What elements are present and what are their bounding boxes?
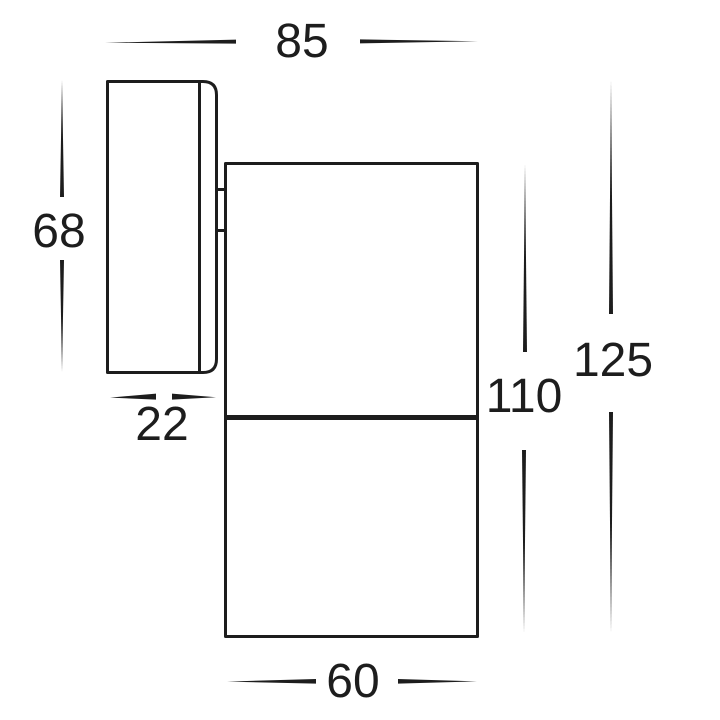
dim-body-width-left-stroke [227,679,316,684]
fixture-body-outline [226,164,478,637]
dim-overall-depth-right-stroke [360,39,478,43]
technical-drawing: 85 68 22 110 125 60 [0,0,720,720]
dim-body-width-right-stroke [398,679,477,684]
dim-backplate-height-bottom-stroke [60,260,64,372]
dimension-backplate-height: 68 [32,80,85,372]
dim-backplate-height-top-stroke [60,80,64,197]
dimension-body-width-label: 60 [326,655,379,708]
dimension-body-height-label: 110 [486,370,563,423]
drawing-canvas: 85 68 22 110 125 60 [0,0,720,720]
dimension-backplate-depth-label: 22 [135,398,188,451]
dimension-overall-height: 125 [573,80,653,633]
dimension-backplate-height-label: 68 [32,205,85,258]
dim-overall-height-top-stroke [609,80,613,314]
dim-overall-height-bottom-stroke [609,412,613,633]
dim-overall-depth-left-stroke [105,40,236,44]
dimension-body-height: 110 [486,164,563,633]
dimension-backplate-depth: 22 [110,394,216,451]
dim-body-height-bottom-stroke [522,450,526,633]
dim-body-height-top-stroke [523,164,527,352]
wall-plate [108,82,217,373]
dimension-overall-depth-label: 85 [275,15,328,68]
dimension-overall-depth: 85 [105,15,478,68]
fixture-body [226,164,478,637]
dimension-overall-height-label: 125 [573,334,653,387]
dimension-body-width: 60 [227,655,477,708]
